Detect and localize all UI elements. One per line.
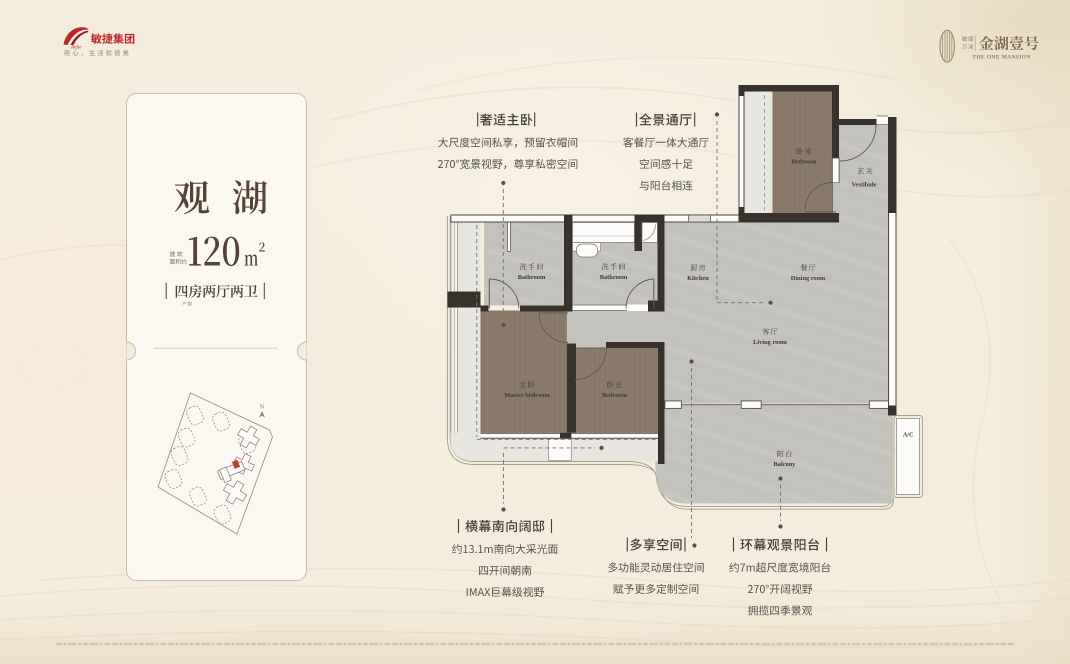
svg-text:A/C: A/C — [903, 432, 914, 439]
svg-text:Anjie: Anjie — [70, 45, 82, 50]
svg-text:Bathroom: Bathroom — [518, 274, 546, 281]
svg-text:N: N — [260, 404, 265, 411]
svg-text:Master bedroom: Master bedroom — [504, 392, 550, 399]
svg-text:Living room: Living room — [753, 339, 787, 346]
svg-text:Balcony: Balcony — [773, 461, 796, 468]
svg-text:Bedroom: Bedroom — [602, 392, 628, 399]
svg-text:Bedroom: Bedroom — [791, 159, 817, 166]
svg-text:Bathroom: Bathroom — [600, 274, 628, 281]
svg-text:Dining room: Dining room — [791, 275, 826, 282]
svg-text:THE ONE MANSION: THE ONE MANSION — [972, 55, 1031, 61]
svg-text:Kitchen: Kitchen — [687, 275, 709, 282]
svg-text:Vestibule: Vestibule — [852, 182, 877, 189]
